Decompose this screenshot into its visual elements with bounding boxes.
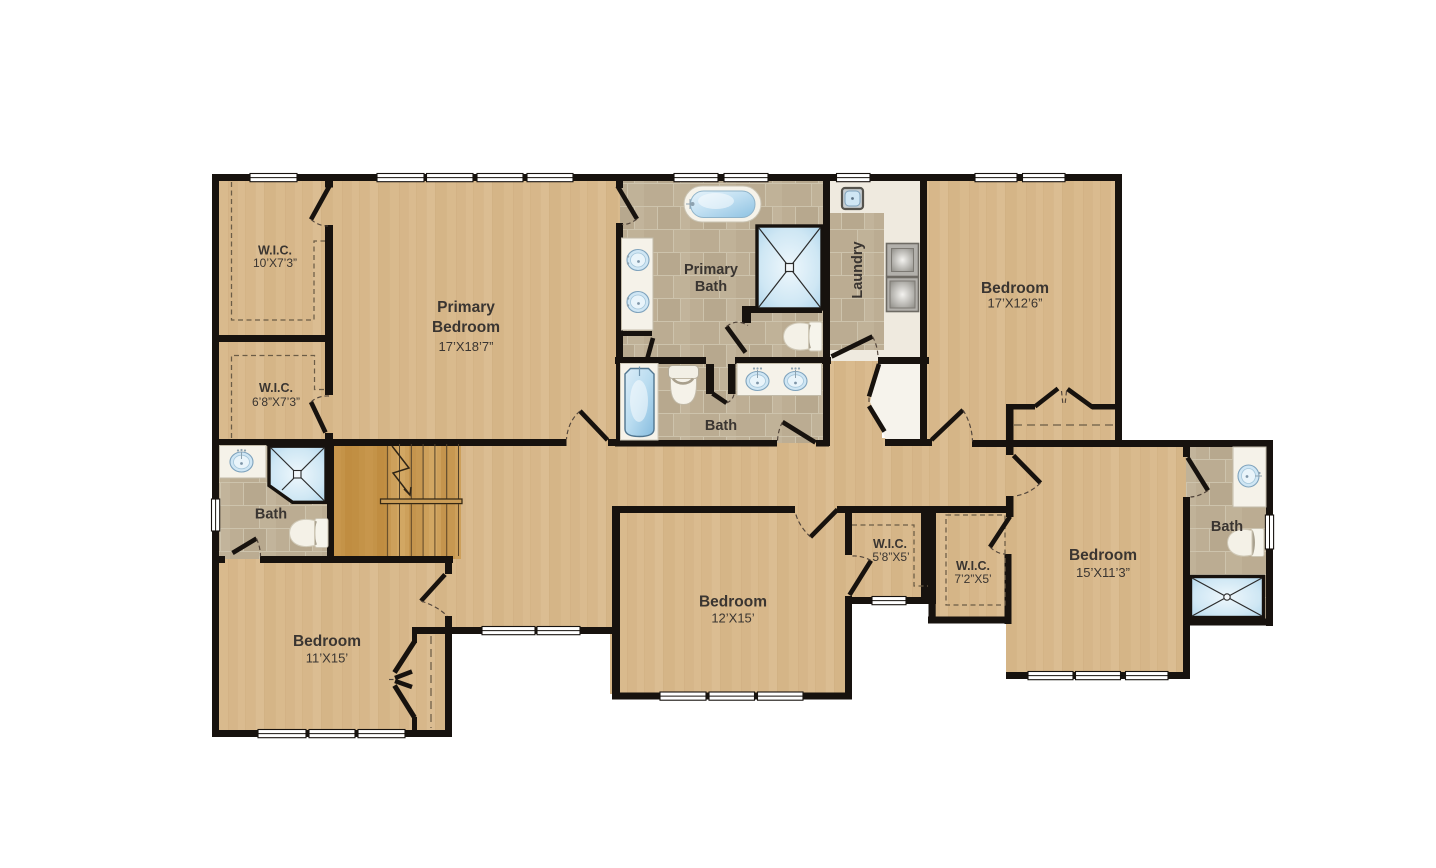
svg-text:Bedroom: Bedroom	[293, 633, 361, 650]
svg-text:Bath: Bath	[1211, 519, 1243, 535]
svg-text:17’X18’7”: 17’X18’7”	[439, 339, 494, 354]
svg-text:17’X12’6”: 17’X12’6”	[988, 296, 1043, 311]
svg-text:Laundry: Laundry	[850, 241, 866, 298]
svg-text:7’2”X5’: 7’2”X5’	[954, 572, 991, 586]
svg-text:Bath: Bath	[705, 418, 737, 434]
svg-text:12’X15’: 12’X15’	[711, 611, 754, 626]
svg-text:11’X15’: 11’X15’	[306, 651, 349, 666]
svg-text:6’8”X7’3”: 6’8”X7’3”	[252, 395, 300, 409]
svg-text:Bath: Bath	[255, 507, 287, 523]
svg-text:Bath: Bath	[695, 279, 727, 295]
svg-text:Bedroom: Bedroom	[699, 594, 767, 611]
svg-text:Bedroom: Bedroom	[981, 280, 1049, 297]
svg-text:15’X11’3”: 15’X11’3”	[1076, 565, 1130, 580]
svg-text:W.I.C.: W.I.C.	[873, 537, 907, 551]
svg-text:Primary: Primary	[437, 299, 495, 316]
svg-text:10’X7’3”: 10’X7’3”	[253, 256, 297, 270]
svg-text:W.I.C.: W.I.C.	[956, 559, 990, 573]
svg-text:5’8”X5’: 5’8”X5’	[872, 550, 909, 564]
svg-text:Bedroom: Bedroom	[1069, 547, 1137, 564]
svg-text:Primary: Primary	[684, 262, 738, 278]
svg-text:Bedroom: Bedroom	[432, 319, 500, 336]
svg-text:W.I.C.: W.I.C.	[259, 381, 293, 395]
